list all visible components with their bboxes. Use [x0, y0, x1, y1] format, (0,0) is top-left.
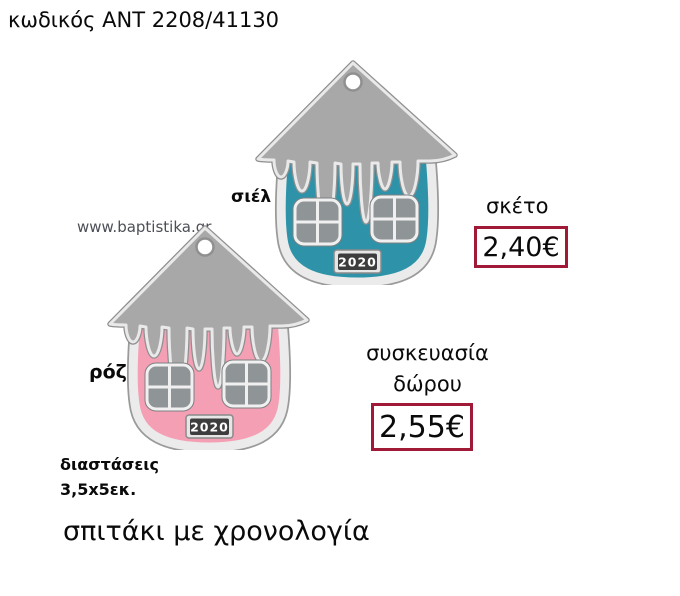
- variant-label-siel: σιέλ: [231, 187, 271, 207]
- window-right: [224, 362, 269, 406]
- dimensions-block: διαστάσεις 3,5x5εκ.: [60, 452, 159, 502]
- dimensions-label: διαστάσεις: [60, 452, 159, 477]
- hanging-hole: [197, 239, 214, 256]
- year-text: 2020: [338, 255, 377, 270]
- variant-label-roz: ρόζ: [89, 361, 127, 383]
- year-plaque: 2020: [334, 250, 381, 273]
- page-canvas: κωδικός ΑΝΤ 2208/41130 www.baptistika.gr: [0, 0, 680, 596]
- product-name-caption: σπιτάκι με χρονολογία: [63, 516, 370, 547]
- year-plaque: 2020: [186, 415, 233, 438]
- gift-wrap-label-line1: συσκευασία: [355, 338, 500, 369]
- window-left: [147, 365, 192, 409]
- product-code-label: κωδικός ΑΝΤ 2208/41130: [8, 8, 279, 32]
- window-right: [372, 197, 417, 241]
- house-charm-pink-image: 2020: [106, 224, 312, 450]
- year-text: 2020: [190, 420, 229, 435]
- plain-price-box: 2,40€: [474, 226, 568, 268]
- gift-wrap-label: συσκευασία δώρου: [355, 338, 500, 400]
- gift-price-value: 2,55€: [379, 410, 465, 445]
- hanging-hole: [345, 74, 362, 91]
- dimensions-value: 3,5x5εκ.: [60, 477, 159, 502]
- plain-price-label: σκέτο: [486, 194, 549, 218]
- plain-price-value: 2,40€: [482, 232, 559, 263]
- gift-price-box: 2,55€: [371, 403, 473, 451]
- gift-wrap-label-line2: δώρου: [355, 369, 500, 400]
